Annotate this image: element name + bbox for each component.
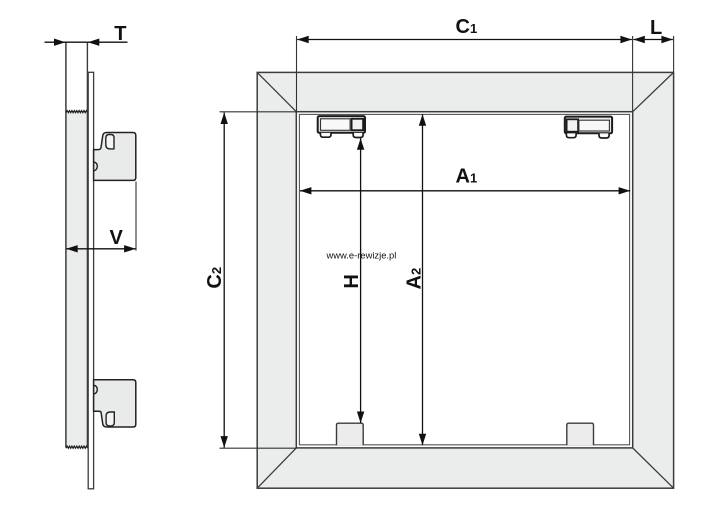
svg-text:T: T bbox=[114, 23, 126, 45]
svg-text:V: V bbox=[110, 227, 124, 249]
svg-text:L: L bbox=[650, 17, 662, 39]
svg-text:H: H bbox=[341, 274, 363, 288]
